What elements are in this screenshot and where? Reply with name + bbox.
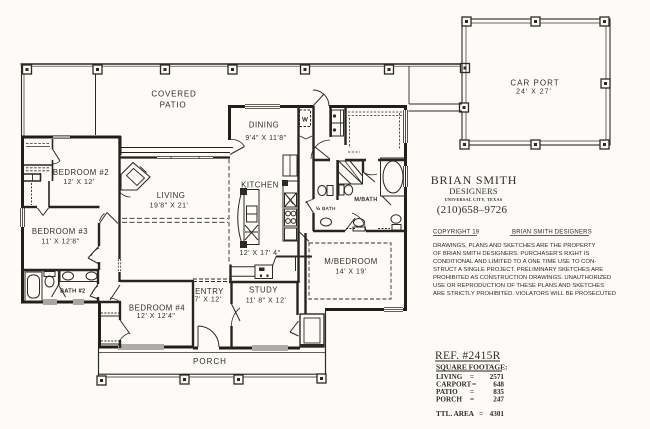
svg-text:=: = xyxy=(470,396,474,404)
svg-text:COVERED: COVERED xyxy=(151,90,196,99)
svg-text:STUDY: STUDY xyxy=(249,286,278,295)
svg-text:24' X 27': 24' X 27' xyxy=(516,89,552,96)
svg-text:DRAWINGS, PLANS AND SKETCHES A: DRAWINGS, PLANS AND SKETCHES ARE THE PRO… xyxy=(433,243,596,249)
svg-text:PROHIBITED AS CONSTRUCTION DRA: PROHIBITED AS CONSTRUCTION DRAWINGS. UNA… xyxy=(433,275,611,281)
svg-text:BEDROOM #2: BEDROOM #2 xyxy=(53,168,109,177)
svg-text:7' X 12': 7' X 12' xyxy=(195,297,222,304)
svg-text:11' 8" X 12': 11' 8" X 12' xyxy=(246,298,287,305)
svg-text:BRIAN SMITH: BRIAN SMITH xyxy=(431,173,517,187)
svg-text:DESIGNERS: DESIGNERS xyxy=(449,186,498,196)
svg-text:STRUCT A SINGLE PROJECT. PREL: STRUCT A SINGLE PROJECT. PRELIMINARY SKE… xyxy=(433,267,603,273)
svg-text:12' X 12'4": 12' X 12'4" xyxy=(137,313,176,320)
svg-text:PATIO: PATIO xyxy=(160,101,187,110)
svg-text:12' X 12': 12' X 12' xyxy=(63,179,94,186)
svg-text:(210)658–9726: (210)658–9726 xyxy=(437,204,508,216)
svg-text:14' X 19': 14' X 19' xyxy=(335,269,366,276)
svg-text:ARE STRICTLY PROHIBITED. VIOL: ARE STRICTLY PROHIBITED. VIOLATORS WILL … xyxy=(433,291,616,297)
svg-text:4301: 4301 xyxy=(490,410,505,418)
svg-text:19'8" X 21': 19'8" X 21' xyxy=(150,203,189,210)
svg-text:LIVING: LIVING xyxy=(157,191,186,200)
svg-text:BEDROOM #3: BEDROOM #3 xyxy=(32,227,88,236)
svg-text:PORCH: PORCH xyxy=(193,357,227,366)
svg-text:9'4" X 11'8": 9'4" X 11'8" xyxy=(245,135,286,142)
svg-text:M/BEDROOM: M/BEDROOM xyxy=(324,257,377,266)
svg-text:COPYRIGHT 19: COPYRIGHT 19 xyxy=(433,230,480,236)
svg-text:BEDROOM #4: BEDROOM #4 xyxy=(129,304,185,313)
svg-text:CAR PORT: CAR PORT xyxy=(510,79,559,88)
svg-text:SQUARE FOOTAGE:: SQUARE FOOTAGE: xyxy=(436,363,508,372)
svg-text:TTL. AREA: TTL. AREA xyxy=(436,410,475,418)
svg-text:REF. #2415R: REF. #2415R xyxy=(435,350,501,362)
svg-text:½ BATH: ½ BATH xyxy=(316,205,336,211)
svg-text:247: 247 xyxy=(493,396,504,404)
svg-text:USE OR REPRODUCTION OF THESE P: USE OR REPRODUCTION OF THESE PLANS AND S… xyxy=(433,283,604,289)
svg-text:M/BATH: M/BATH xyxy=(354,197,377,203)
svg-text:W: W xyxy=(302,118,308,124)
svg-text:OF BRIAN SMITH DESIGNERS. PUR: OF BRIAN SMITH DESIGNERS. PURCHASER'S RI… xyxy=(433,251,590,257)
svg-text:11' X 12'8": 11' X 12'8" xyxy=(41,239,79,246)
svg-text:PORCH: PORCH xyxy=(436,396,462,404)
svg-text:BATH #2: BATH #2 xyxy=(60,289,85,295)
svg-text:BRIAN SMITH DESIGNERS: BRIAN SMITH DESIGNERS xyxy=(512,230,592,236)
svg-text:ENTRY: ENTRY xyxy=(195,287,224,296)
svg-text:=: = xyxy=(479,410,483,418)
svg-text:12' X 17' 4": 12' X 17' 4" xyxy=(239,250,280,257)
svg-text:DINING: DINING xyxy=(249,121,279,130)
svg-text:CONDITIONAL AND LIMITED TO A O: CONDITIONAL AND LIMITED TO A ONE TIME US… xyxy=(433,259,596,265)
svg-text:KITCHEN: KITCHEN xyxy=(241,181,279,190)
svg-text:UNIVERSAL CITY, TEXAS: UNIVERSAL CITY, TEXAS xyxy=(445,197,503,202)
